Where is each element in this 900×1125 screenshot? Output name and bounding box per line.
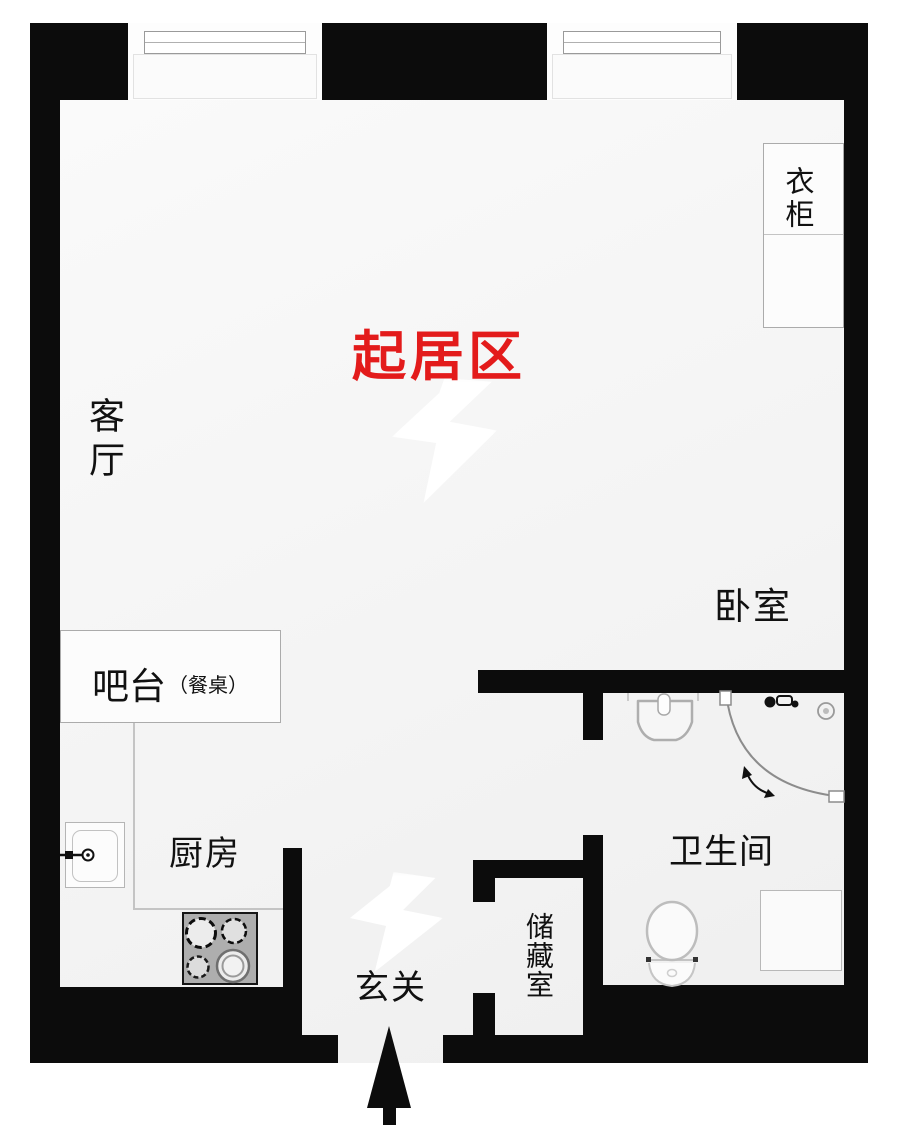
bar-counter-label: 吧台 （餐桌）: [92, 656, 248, 710]
wall-storage-left-upper: [473, 860, 495, 902]
bedroom-label: 卧室: [714, 576, 792, 630]
kitchen-sink-basin: [72, 830, 118, 882]
bathroom-label: 卫生间: [669, 824, 774, 873]
wall-bedroom-bathroom: [478, 670, 844, 693]
shower-tray: [760, 890, 842, 971]
wall-bathroom-left-lower: [583, 835, 603, 1035]
living-area-label: 起居区: [352, 312, 526, 391]
living-room-label: 客厅: [77, 397, 129, 485]
stove: [182, 912, 258, 985]
wardrobe-label: 衣柜: [777, 166, 819, 232]
wall-storage-left-lower: [473, 993, 495, 1035]
bar-counter-label-main: 吧台: [92, 656, 166, 710]
window-sill: [133, 54, 317, 99]
entry-label: 玄关: [355, 960, 427, 1009]
storage-label: 储藏室: [518, 912, 558, 999]
bar-counter-label-note: （餐桌）: [168, 669, 248, 698]
wall-right: [844, 98, 868, 1063]
wall-left: [30, 23, 60, 1063]
wall-bathroom-left-upper: [583, 693, 603, 740]
wall-bottom-left: [30, 987, 302, 1063]
kitchen-label: 厨房: [169, 826, 241, 875]
wall-bottom-middle: [443, 1035, 602, 1063]
window-frame-midline: [564, 42, 720, 43]
wall-bottom-step: [302, 1035, 338, 1063]
wardrobe-divider: [764, 234, 843, 235]
kitchen-counter-edge: [133, 723, 135, 909]
window-sill: [552, 54, 732, 99]
floor-plan: 起居区 客厅 卧室 衣柜 吧台 （餐桌） 厨房 卫生间 储藏室 玄关: [0, 0, 900, 1125]
wall-top-right: [737, 23, 868, 100]
window-frame-midline: [145, 42, 305, 43]
wall-top-middle: [322, 23, 547, 100]
kitchen-counter-edge: [133, 908, 283, 910]
wall-kitchen-hall: [283, 848, 302, 987]
wall-bottom-right: [602, 985, 868, 1063]
